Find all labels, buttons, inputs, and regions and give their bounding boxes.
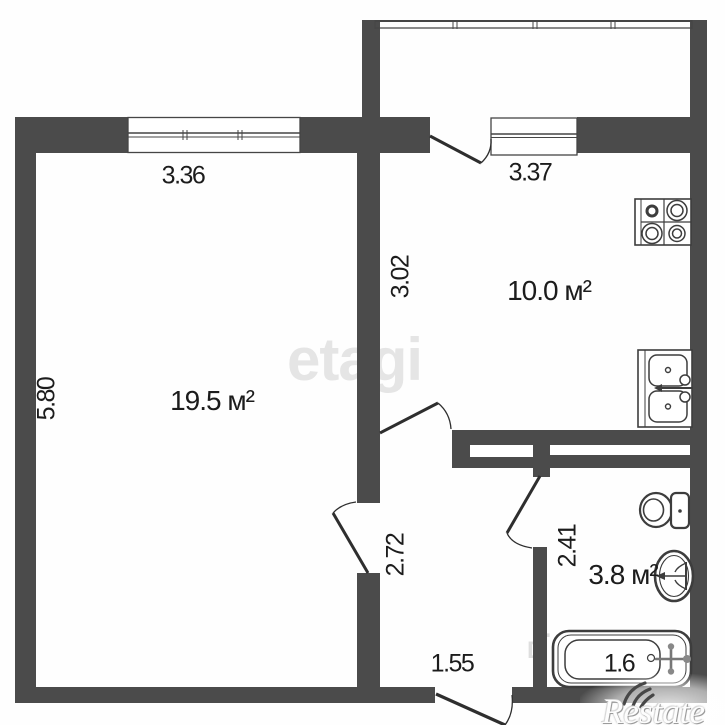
floor-plan: etagi L D xyxy=(0,0,725,725)
restate-watermark: Restate xyxy=(602,694,705,725)
restate-swoosh-icon xyxy=(0,0,725,725)
